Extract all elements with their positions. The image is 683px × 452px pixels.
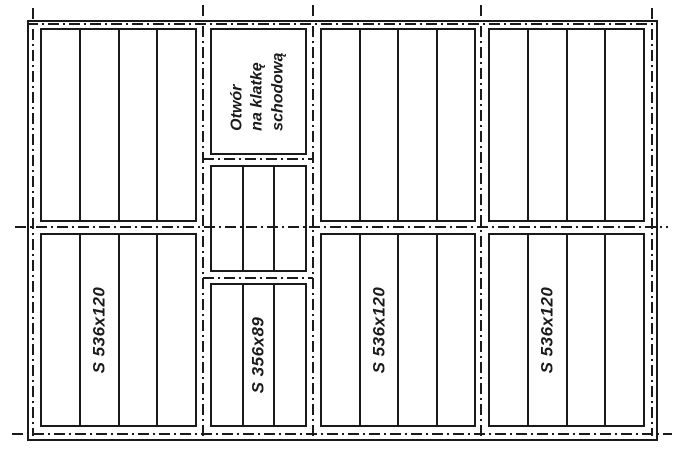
slab-plank — [118, 235, 157, 425]
staircase-label-line-2: na klatkę — [248, 52, 268, 130]
slab-plank — [604, 235, 643, 425]
slab-layout-drawing: Otwór na klatkę schodową S 536x120 S 356… — [0, 0, 683, 452]
axis-line-horizontal-top — [27, 23, 658, 25]
slab-plank — [436, 235, 475, 425]
staircase-opening-label: Otwór na klatkę schodową — [228, 52, 289, 130]
axis-line-vertical-1 — [32, 8, 34, 436]
slab-panel-bottom-right: S 536x120 — [488, 233, 645, 427]
slab-plank — [604, 30, 643, 220]
slab-plank — [42, 30, 79, 220]
slab-panel-middle-landing — [210, 165, 307, 272]
slab-plank — [79, 30, 118, 220]
slab-plank — [527, 30, 566, 220]
slab-plank — [156, 30, 195, 220]
slab-plank — [490, 30, 527, 220]
staircase-opening: Otwór na klatkę schodową — [210, 28, 307, 155]
staircase-opening-label-wrap: Otwór na klatkę schodową — [212, 30, 305, 153]
slab-panel-top-left — [40, 28, 197, 222]
slab-panel-bottom-middle: S 356x89 — [210, 283, 307, 427]
slab-plank — [42, 235, 79, 425]
slab-plank — [359, 30, 398, 220]
staircase-label-line-3: schodową — [269, 52, 289, 130]
slab-plank — [397, 235, 436, 425]
slab-plank — [212, 285, 242, 425]
axis-line-vertical-2 — [202, 5, 204, 438]
axis-line-horizontal-middle — [15, 226, 668, 228]
slab-plank — [242, 167, 274, 270]
slab-plank — [242, 285, 274, 425]
slab-plank — [79, 235, 118, 425]
slab-plank — [527, 235, 566, 425]
slab-panel-top-center — [320, 28, 476, 222]
slab-plank — [212, 167, 242, 270]
staircase-label-line-1: Otwór — [228, 52, 248, 130]
axis-line-vertical-5 — [651, 8, 653, 436]
axis-line-vertical-3 — [312, 5, 314, 438]
slab-panel-bottom-left: S 536x120 — [40, 233, 197, 427]
slab-plank — [566, 30, 605, 220]
axis-line-stair-lower — [203, 277, 313, 279]
slab-plank — [322, 235, 359, 425]
slab-plank — [322, 30, 359, 220]
slab-plank — [156, 235, 195, 425]
axis-line-horizontal-bottom — [12, 433, 672, 435]
slab-plank — [359, 235, 398, 425]
slab-plank — [273, 285, 305, 425]
slab-plank — [397, 30, 436, 220]
axis-line-stair-upper — [203, 158, 313, 160]
slab-plank — [436, 30, 475, 220]
slab-plank — [118, 30, 157, 220]
slab-plank — [566, 235, 605, 425]
slab-plank — [490, 235, 527, 425]
slab-plank — [273, 167, 305, 270]
axis-line-vertical-4 — [480, 5, 482, 438]
slab-panel-top-right — [488, 28, 645, 222]
slab-panel-bottom-center: S 536x120 — [320, 233, 476, 427]
